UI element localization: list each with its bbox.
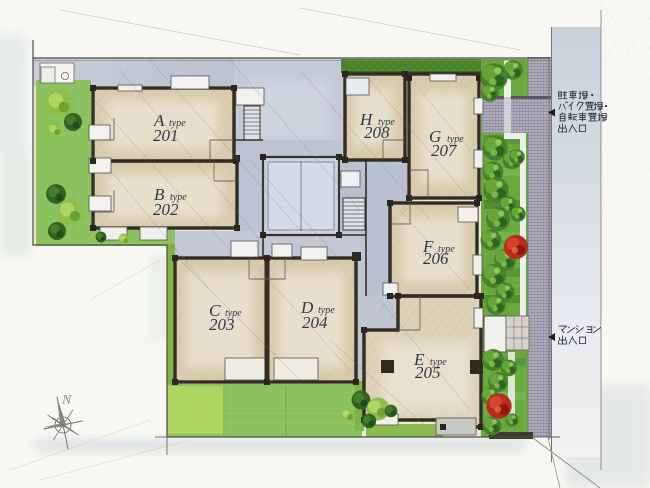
svg-text:205: 205 — [415, 363, 441, 382]
svg-text:208: 208 — [364, 123, 390, 142]
svg-text:204: 204 — [302, 313, 328, 332]
svg-text:203: 203 — [209, 315, 235, 334]
svg-text:N: N — [61, 393, 72, 408]
svg-text:201: 201 — [153, 126, 179, 145]
svg-text:202: 202 — [153, 200, 179, 219]
svg-text:206: 206 — [423, 249, 449, 268]
svg-text:207: 207 — [431, 141, 458, 160]
